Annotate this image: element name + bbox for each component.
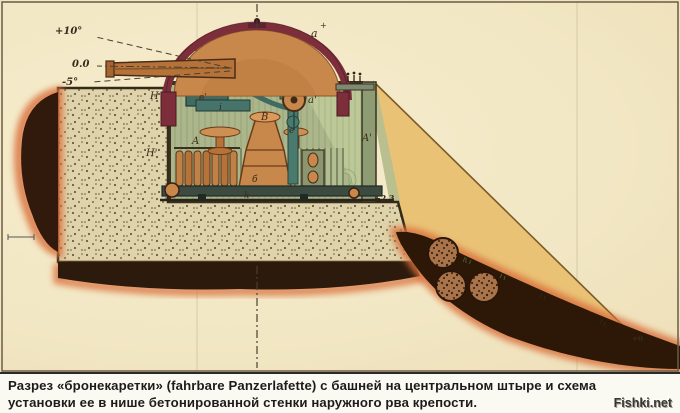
locker-port-top <box>308 153 318 167</box>
label-wall-upper: Н <box>149 91 159 102</box>
gun-barrel <box>106 59 235 78</box>
label-wall-lower: Н' <box>145 148 157 159</box>
dome-cross-mark: + <box>320 21 327 30</box>
label-column: В <box>260 112 268 123</box>
label-handwheel: a' <box>308 95 317 106</box>
label-breech: в' <box>199 93 207 103</box>
armor-skirt-right <box>337 92 349 116</box>
label-rack-right: A' <box>361 133 372 144</box>
label-base-truck: k <box>244 191 249 201</box>
caption-line-2: установки ее в нише бетонированной стенк… <box>8 394 672 411</box>
fortification-section-drawing: +10° 0.0 -5° Н Н' A A' в' i В б k e a + … <box>0 0 680 373</box>
caption-line-1: Разрез «бронекаретки» (fahrbare Panzerla… <box>8 377 672 394</box>
scanned-plate: +10° 0.0 -5° Н Н' A A' в' i В б k e a + … <box>0 0 680 413</box>
label-dome: a <box>311 27 318 40</box>
label-rack-left: A <box>191 136 199 147</box>
label-breech-link: i <box>219 103 222 113</box>
scale-tick <box>8 234 34 240</box>
locker-port-bottom <box>308 171 318 183</box>
label-level-ditch: +0 <box>632 334 643 343</box>
label-elevation-zero: 0.0 <box>72 59 89 70</box>
label-elevation-up: +10° <box>55 26 82 37</box>
label-pedestal: б <box>252 174 258 185</box>
label-level-floor: +2.3 <box>374 193 395 203</box>
label-elevation-down: -5° <box>62 77 78 88</box>
armor-skirt-left <box>161 92 176 126</box>
caption-block: Разрез «бронекаретки» (fahrbare Panzerla… <box>0 372 680 413</box>
label-stand: e <box>289 126 294 136</box>
site-watermark: Fishki.net <box>614 396 672 410</box>
